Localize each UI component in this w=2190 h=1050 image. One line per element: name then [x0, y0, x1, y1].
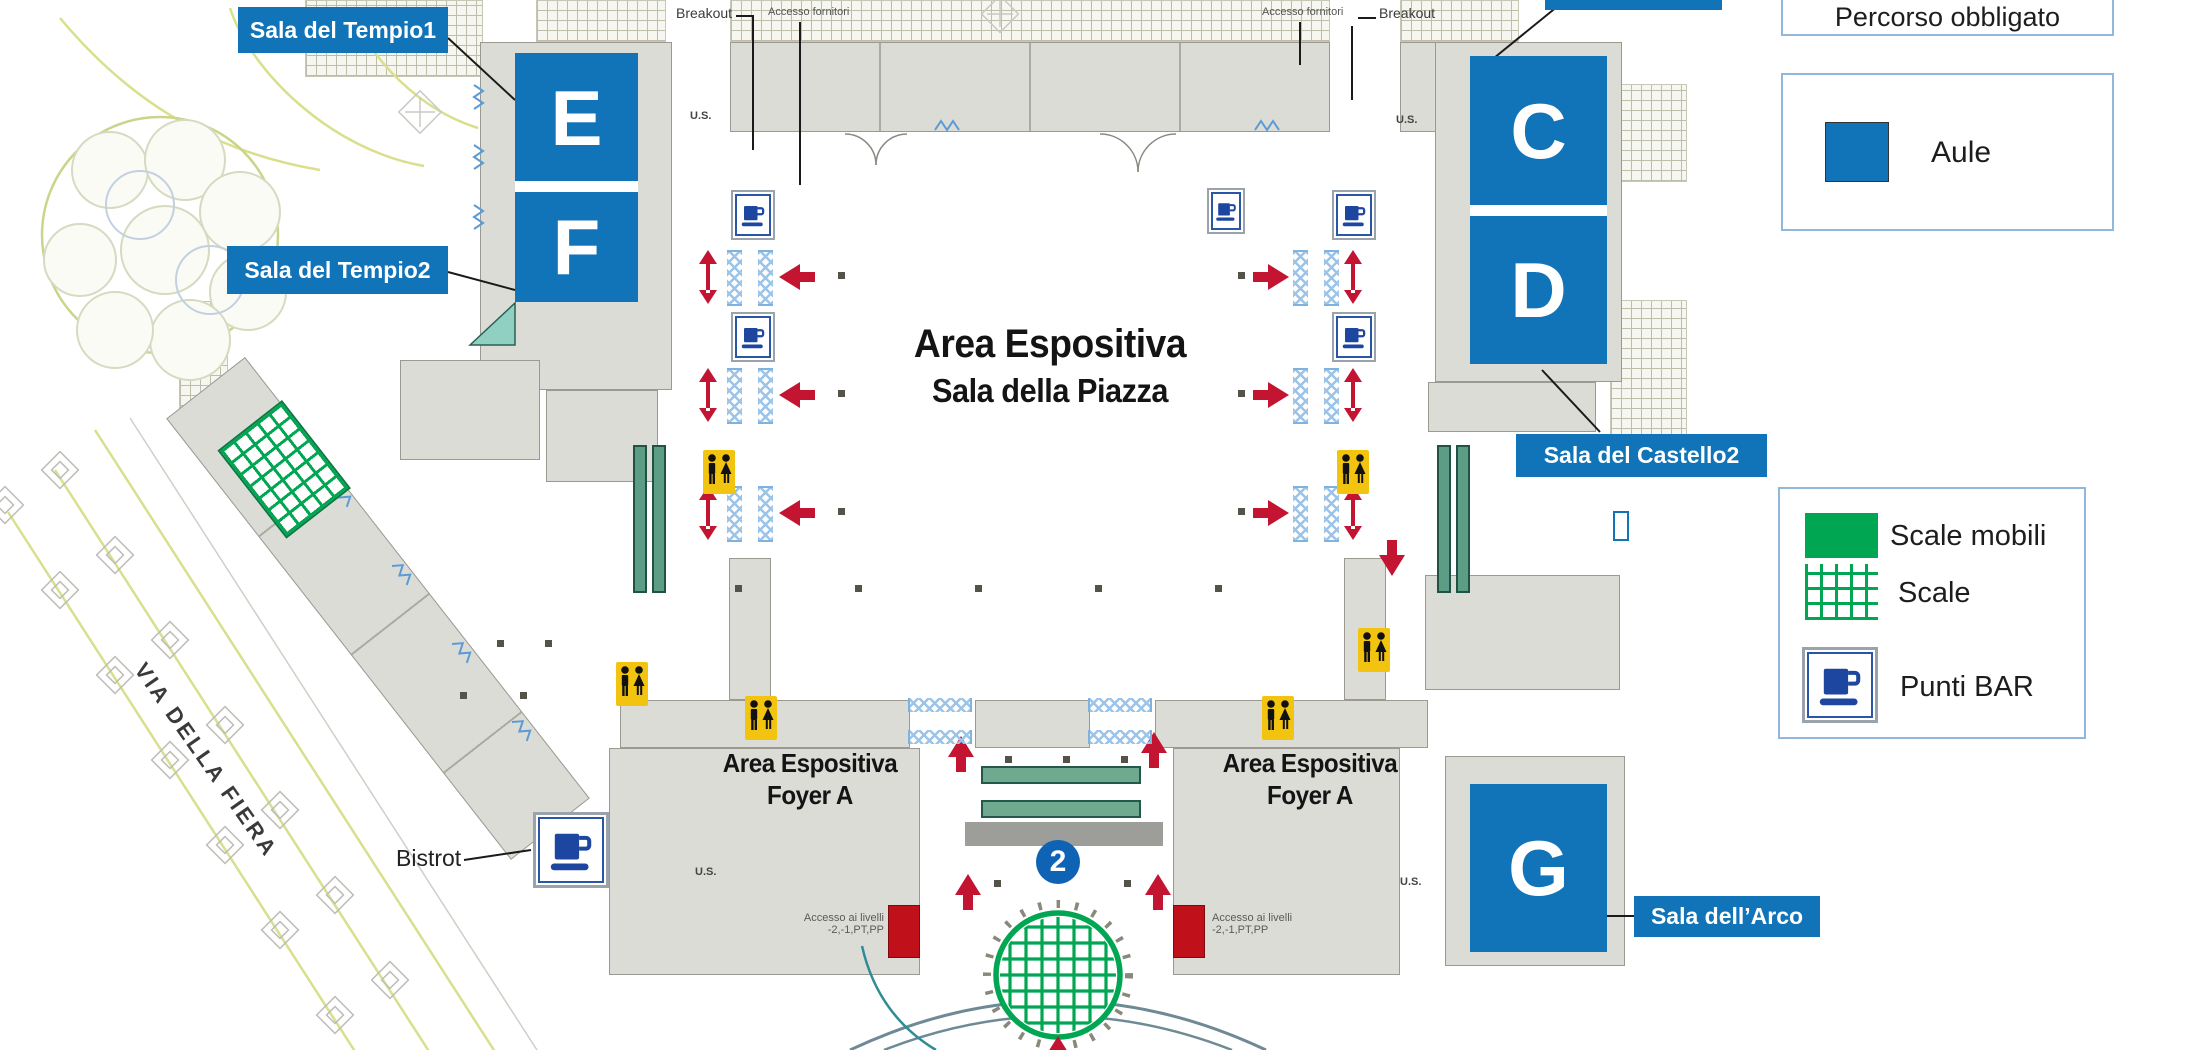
punti-bar-icon: [1332, 190, 1376, 240]
access-levels-line2: -2,-1,PT,PP: [800, 924, 884, 936]
room-g: G: [1470, 784, 1607, 952]
access-levels-line1: Accesso ai livelli: [1212, 912, 1296, 924]
label-text: Sala dell’Arco: [1651, 903, 1803, 930]
arrow-down-icon: [1379, 540, 1405, 576]
cup-icon: [1339, 321, 1369, 353]
legend-aule: Aule: [1781, 73, 2114, 231]
legend-scale-mobili-label: Scale mobili: [1890, 520, 2046, 553]
punti-bar-icon: [1802, 647, 1878, 723]
access-levels-label: Accesso ai livelli -2,-1,PT,PP: [1212, 912, 1296, 936]
legend-aule-label: Aule: [1931, 136, 1991, 170]
arrow-updown-icon: [1344, 368, 1362, 422]
room-f: F: [515, 192, 638, 302]
cup-icon: [1213, 197, 1239, 225]
legend-scale-label: Scale: [1898, 577, 1971, 610]
scale-swatch: [1805, 564, 1878, 620]
bistrot-label: Bistrot: [396, 845, 461, 872]
arrow-up-icon: [1145, 874, 1171, 910]
entrance-2-number: 2: [1050, 845, 1067, 879]
legend-symbols: Scale mobili Scale Punti BAR: [1778, 487, 2086, 739]
legend-punti-bar-label: Punti BAR: [1900, 671, 2034, 704]
label-text: Sala del Castello2: [1544, 442, 1740, 469]
punti-bar-icon: [731, 190, 775, 240]
arrow-left-icon: [779, 382, 815, 408]
cup-icon: [738, 321, 768, 353]
access-levels-line1: Accesso ai livelli: [800, 912, 884, 924]
us-label: U.S.: [1400, 876, 1421, 888]
room-c-label: C: [1510, 86, 1566, 177]
room-g-label: G: [1508, 823, 1569, 914]
gate-icon: [727, 250, 773, 306]
scale-mobili-swatch: [1805, 513, 1878, 558]
bistrot-bar-icon: [533, 812, 609, 888]
label-sala-dell-arco: Sala dell’Arco: [1634, 896, 1820, 937]
entrance-2-badge: 2: [1036, 840, 1080, 884]
cut-label-bar: [1545, 0, 1722, 10]
us-label: U.S.: [695, 866, 716, 878]
arrow-left-icon: [779, 500, 815, 526]
door-arcs: [845, 134, 1176, 172]
room-c: C: [1470, 56, 1607, 207]
stairs-circle-icon: [987, 900, 1130, 1050]
teal-ramp: [470, 303, 515, 345]
cup-icon: [1813, 658, 1867, 712]
gate-icon: [908, 698, 972, 744]
arrow-right-icon: [1253, 264, 1289, 290]
punti-bar-icon: [731, 312, 775, 362]
access-levels-box: [888, 905, 920, 958]
breakout-left-label: Breakout: [676, 5, 732, 21]
room-e: E: [515, 53, 638, 183]
wc-icon: [703, 450, 735, 499]
access-levels-box: [1173, 905, 1205, 958]
wc-icon: [1337, 450, 1369, 499]
breakout-right-label: Breakout: [1379, 5, 1435, 21]
door-marks: [332, 85, 1279, 741]
arrow-updown-icon: [699, 368, 717, 422]
gate-icon: [1293, 368, 1339, 424]
arrow-up-icon: [955, 874, 981, 910]
arrow-updown-icon: [1344, 250, 1362, 304]
access-levels-line2: -2,-1,PT,PP: [1212, 924, 1296, 936]
accesso-fornitori-right-label: Accesso fornitori: [1262, 6, 1343, 18]
cup-icon: [738, 199, 768, 231]
label-text: Sala del Tempio2: [244, 257, 430, 284]
escalator-icon: [981, 800, 1141, 818]
gate-icon: [1293, 250, 1339, 306]
us-label: U.S.: [1396, 114, 1417, 126]
escalator-icon: [1437, 445, 1473, 593]
foyer-left-line1: Area Espositiva: [717, 748, 903, 779]
wc-icon: [745, 696, 777, 745]
floor-plan-map: E F C D G Sala del Tempio1 Sala del Temp…: [0, 0, 2190, 1050]
punti-bar-icon: [1332, 312, 1376, 362]
legend-percorso-obbligato: Percorso obbligato: [1781, 0, 2114, 36]
room-d-label: D: [1510, 245, 1566, 336]
cup-frame: [1807, 652, 1873, 718]
divider: [1470, 205, 1607, 216]
wc-icon: [616, 662, 648, 711]
foyer-right-line1: Area Espositiva: [1217, 748, 1403, 779]
cup-icon: [544, 823, 598, 877]
gate-icon: [727, 368, 773, 424]
arrow-updown-icon: [699, 250, 717, 304]
label-text: Sala del Tempio1: [250, 17, 436, 44]
label-sala-del-tempio2: Sala del Tempio2: [227, 246, 448, 294]
gate-icon: [1293, 486, 1339, 542]
room-e-label: E: [550, 73, 602, 164]
wc-icon: [1262, 696, 1294, 745]
label-sala-del-castello2: Sala del Castello2: [1516, 434, 1767, 477]
accesso-fornitori-left-label: Accesso fornitori: [768, 6, 849, 18]
piazza-title: Area Espositiva: [864, 322, 1236, 367]
wc-icon: [1358, 628, 1390, 677]
punti-bar-icon: [1207, 188, 1245, 234]
aule-swatch: [1825, 122, 1889, 182]
room-f-label: F: [553, 202, 601, 293]
escalator-icon: [981, 766, 1141, 784]
foyer-right-line2: Foyer A: [1217, 780, 1403, 811]
cup-icon: [1339, 199, 1369, 231]
divider: [515, 181, 638, 192]
road-edge: [130, 418, 640, 1050]
arrow-right-icon: [1253, 382, 1289, 408]
foyer-left-line2: Foyer A: [717, 780, 903, 811]
escalator-icon: [633, 445, 669, 593]
piazza-subtitle: Sala della Piazza: [864, 372, 1236, 410]
label-sala-del-tempio1: Sala del Tempio1: [238, 7, 448, 53]
room-d: D: [1470, 216, 1607, 364]
gate-icon: [1088, 698, 1152, 744]
arrow-left-icon: [779, 264, 815, 290]
us-label: U.S.: [690, 110, 711, 122]
arrow-right-icon: [1253, 500, 1289, 526]
access-levels-label: Accesso ai livelli -2,-1,PT,PP: [800, 912, 884, 936]
legend-percorso-label: Percorso obbligato: [1783, 2, 2112, 33]
